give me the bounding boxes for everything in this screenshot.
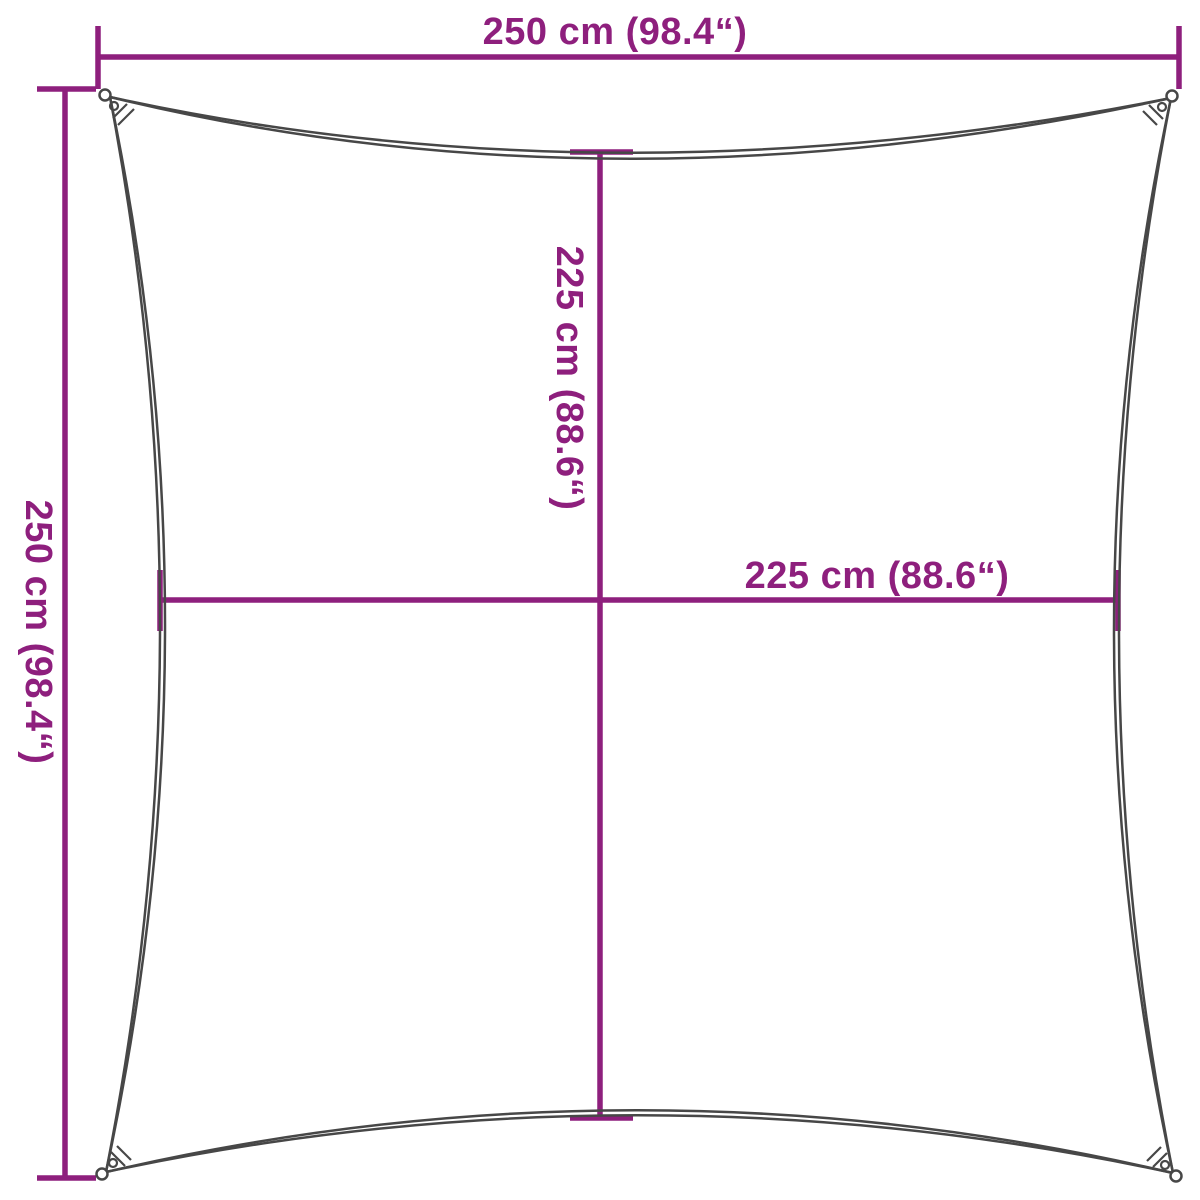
left-height-label: 250 cm (98.4“) xyxy=(17,500,59,765)
sail-inner-edge xyxy=(106,97,1173,1173)
left-height-dimension: 250 cm (98.4“) xyxy=(17,89,96,1178)
corner-grommet-ring-bottom-right xyxy=(1171,1171,1182,1182)
dimension-diagram: 250 cm (98.4“) 250 cm (98.4“) 225 cm (88… xyxy=(0,0,1200,1200)
shade-sail xyxy=(97,90,1182,1182)
corner-stitching-top-right xyxy=(1143,105,1163,125)
inner-width-label: 225 cm (88.6“) xyxy=(745,555,1010,597)
top-width-dimension: 250 cm (98.4“) xyxy=(98,11,1179,89)
corner-stitching-bottom-right xyxy=(1147,1147,1167,1167)
corner-strap-loop-top-right xyxy=(1158,103,1166,111)
inner-height-dimension: 225 cm (88.6“) xyxy=(548,152,633,1118)
inner-height-label: 225 cm (88.6“) xyxy=(548,246,590,511)
corner-strap-loop-bottom-left xyxy=(109,1159,117,1167)
corner-stitching-bottom-left xyxy=(111,1146,131,1166)
top-width-label: 250 cm (98.4“) xyxy=(483,11,748,53)
corner-grommet-ring-top-left xyxy=(100,90,111,101)
corner-grommet-ring-top-right xyxy=(1167,91,1178,102)
sail-outer-edge xyxy=(106,97,1173,1173)
inner-width-dimension: 225 cm (88.6“) xyxy=(160,555,1118,631)
shade-sail-dimension-drawing: 250 cm (98.4“) 250 cm (98.4“) 225 cm (88… xyxy=(0,0,1200,1200)
corner-grommet-ring-bottom-left xyxy=(97,1169,108,1180)
corner-strap-loop-bottom-right xyxy=(1161,1161,1169,1169)
